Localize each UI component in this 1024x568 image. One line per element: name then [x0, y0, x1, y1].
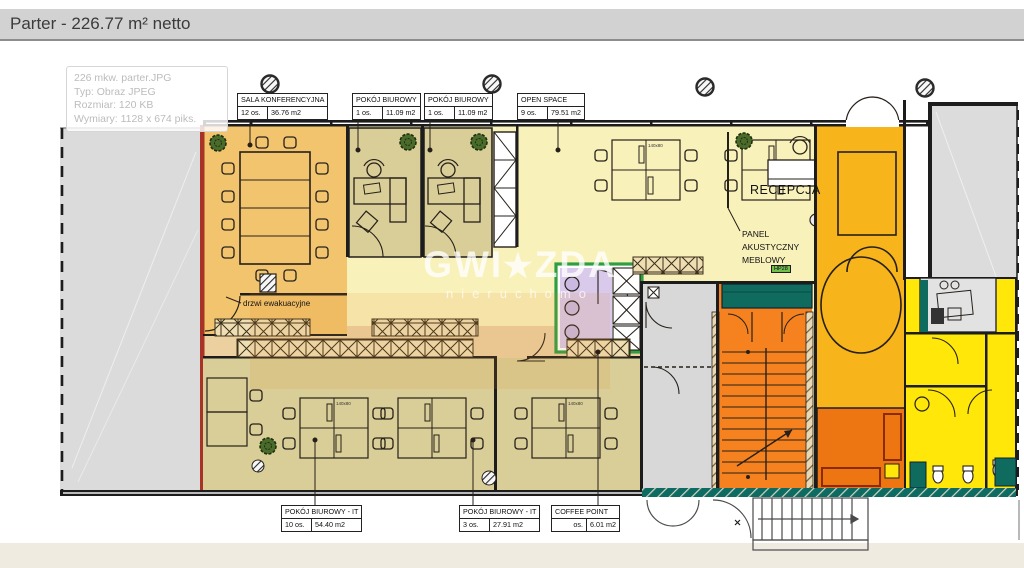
room-label-it10: POKÓJ BIUROWY - IT 10 os.54.40 m2	[281, 505, 362, 532]
room-occupancy: 1 os.	[353, 107, 383, 119]
room-label-conference: SALA KONFERENCYJNA 12 os.36.76 m2	[237, 93, 328, 120]
room-name: POKÓJ BIUROWY	[353, 94, 420, 107]
room-label-office1: POKÓJ BIUROWY 1 os.11.09 m2	[352, 93, 421, 120]
room-area: 27.91 m2	[490, 519, 539, 531]
column-marker-icon	[697, 79, 714, 96]
plant-icon	[260, 438, 276, 454]
floor-plan-page: Parter - 226.77 m² netto	[0, 0, 1024, 568]
reception-annotation: RECEPCJA	[750, 183, 821, 197]
tooltip-dimensions: Wymiary: 1128 x 674 piks.	[74, 113, 220, 127]
desk-size-tag: 140x80	[568, 401, 583, 406]
room-occupancy: 3 os.	[460, 519, 490, 531]
kitchen-appliances	[613, 268, 640, 350]
column-marker-icon	[484, 76, 501, 93]
image-tooltip: 226 mkw. parter.JPG Typ: Obraz JPEG Rozm…	[66, 66, 228, 132]
room-name: POKÓJ BIUROWY - IT	[282, 506, 361, 519]
exterior-stairs	[647, 498, 1019, 550]
room-area: 36.76 m2	[268, 107, 327, 119]
hp-tag: HP28	[771, 265, 791, 273]
teal-sofa	[722, 284, 812, 308]
column-marker-icon	[917, 80, 934, 97]
room-name: POKÓJ BIUROWY	[425, 94, 492, 107]
room-area: 11.09 m2	[455, 107, 492, 119]
evacuation-door-annotation: drzwi ewakuacyjne	[243, 299, 310, 308]
bottom-margin-band	[0, 543, 1024, 568]
room-name: POKÓJ BIUROWY - IT	[460, 506, 539, 519]
tooltip-size: Rozmiar: 120 KB	[74, 99, 220, 113]
room-name: SALA KONFERENCYJNA	[238, 94, 327, 107]
room-occupancy: os.	[552, 519, 587, 531]
desk-size-tag: 140x80	[336, 401, 351, 406]
plant-icon	[471, 134, 487, 150]
room-occupancy: 10 os.	[282, 519, 312, 531]
small-offices-region	[346, 125, 492, 257]
plant-icon	[736, 133, 752, 149]
entrance-hall-region	[817, 92, 905, 410]
room-occupancy: 1 os.	[425, 107, 455, 119]
room-occupancy: 9 os.	[518, 107, 548, 119]
plant-icon	[210, 135, 226, 151]
toilets-region	[905, 278, 1016, 490]
tooltip-filename: 226 mkw. parter.JPG	[74, 72, 220, 86]
acoustic-panel-annotation: PANEL AKUSTYCZNY MEBLOWY	[742, 228, 814, 268]
closet-strip	[494, 125, 519, 247]
room-label-office2: POKÓJ BIUROWY 1 os.11.09 m2	[424, 93, 493, 120]
room-name: OPEN SPACE	[518, 94, 584, 107]
neighbor-area-left	[60, 128, 200, 492]
room-area: 6.01 m2	[587, 519, 619, 531]
room-name: COFFEE POINT	[552, 506, 619, 519]
room-area: 54.40 m2	[312, 519, 361, 531]
room-area: 79.51 m2	[548, 107, 584, 119]
room-label-open-space: OPEN SPACE 9 os.79.51 m2	[517, 93, 585, 120]
room-area: 11.09 m2	[383, 107, 420, 119]
utility-room-region	[817, 408, 905, 492]
stairwell-region	[712, 283, 813, 492]
room-label-coffee: COFFEE POINT os.6.01 m2	[551, 505, 620, 532]
plant-icon	[400, 134, 416, 150]
room-label-it3: POKÓJ BIUROWY - IT 3 os.27.91 m2	[459, 505, 540, 532]
desk-size-tag: 140x80	[648, 143, 663, 148]
tooltip-type: Typ: Obraz JPEG	[74, 86, 220, 100]
room-occupancy: 12 os.	[238, 107, 268, 119]
vestibule-region	[642, 283, 718, 492]
column-marker-icon	[262, 76, 279, 93]
